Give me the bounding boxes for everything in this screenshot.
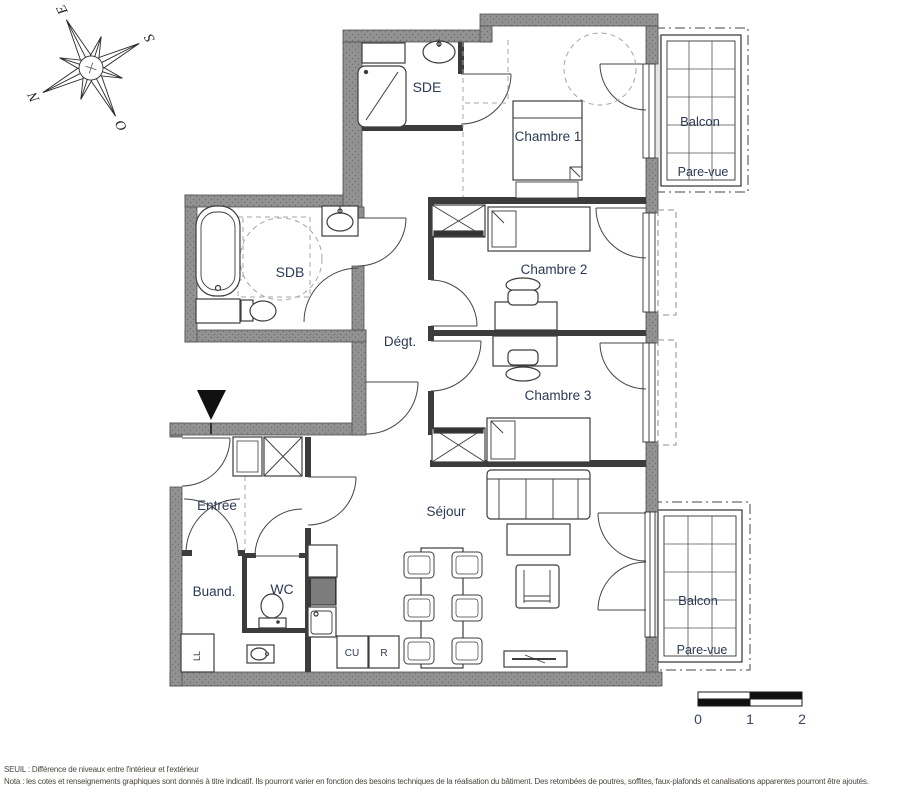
bed-bench bbox=[516, 182, 578, 198]
room-label-sdb: SDB bbox=[276, 264, 305, 280]
footer-notes: SEUIL : Différence de niveaux entre l'in… bbox=[4, 764, 920, 788]
compass-south-label: S bbox=[142, 31, 159, 44]
label-pare-vue-bottom: Pare-vue bbox=[677, 643, 728, 657]
label-cu: CU bbox=[345, 648, 359, 659]
sofa bbox=[487, 470, 590, 519]
label-pare-vue-top: Pare-vue bbox=[678, 165, 729, 179]
floor-plan-page: N S E O bbox=[0, 0, 923, 800]
desk-chair bbox=[506, 278, 540, 305]
scale-tick-1: 1 bbox=[746, 711, 754, 727]
room-label-sejour: Séjour bbox=[426, 504, 466, 519]
shutter-projections bbox=[658, 210, 676, 445]
label-balcon-bottom: Balcon bbox=[678, 593, 718, 608]
bathtub bbox=[196, 206, 240, 296]
coffee-table bbox=[507, 524, 570, 555]
small-washbasin bbox=[247, 645, 274, 663]
scale-tick-0: 0 bbox=[694, 711, 702, 727]
single-bed bbox=[487, 418, 590, 462]
room-label-chambre1: Chambre 1 bbox=[515, 129, 582, 144]
closet-x bbox=[264, 437, 302, 476]
scale-tick-2: 2 bbox=[798, 711, 806, 727]
tall-unit bbox=[308, 545, 337, 577]
chambre1-furniture bbox=[513, 101, 582, 198]
entree-closets bbox=[233, 437, 302, 476]
shower bbox=[358, 66, 406, 127]
desk bbox=[495, 302, 557, 330]
label-washing-machine: LL bbox=[192, 651, 202, 661]
compass-rose: N S E O bbox=[0, 0, 189, 163]
wardrobe bbox=[432, 428, 485, 462]
room-label-chambre2: Chambre 2 bbox=[521, 262, 588, 277]
wardrobe bbox=[432, 205, 485, 237]
room-label-sde: SDE bbox=[413, 79, 442, 95]
cupboard bbox=[362, 43, 405, 63]
room-label-degt: Dégt. bbox=[384, 334, 416, 349]
appliance-hatched bbox=[310, 578, 336, 605]
single-bed bbox=[488, 207, 590, 251]
label-balcon-top: Balcon bbox=[680, 114, 720, 129]
tv-unit bbox=[504, 651, 567, 667]
compass-north-label: N bbox=[25, 89, 43, 106]
room-label-buand: Buand. bbox=[193, 584, 236, 599]
footer-seuil-note: SEUIL : Différence de niveaux entre l'in… bbox=[4, 764, 920, 776]
scale-bar bbox=[698, 692, 802, 706]
toilet bbox=[259, 594, 286, 628]
bath-cabinet bbox=[196, 299, 240, 323]
toilet bbox=[241, 300, 276, 321]
compass-east-label: E bbox=[54, 2, 72, 18]
room-label-wc: WC bbox=[270, 581, 293, 597]
washbasin bbox=[322, 206, 358, 236]
room-label-chambre3: Chambre 3 bbox=[525, 388, 592, 403]
room-label-entree: Entrée bbox=[197, 498, 237, 513]
floor-plan-drawing: N S E O bbox=[0, 0, 923, 800]
windows bbox=[643, 64, 655, 637]
armchair bbox=[516, 565, 559, 608]
sejour-furniture bbox=[404, 470, 590, 668]
compass-west-label: O bbox=[113, 117, 131, 133]
washbasin bbox=[423, 39, 455, 63]
footer-nota-note: Nota : les cotes et renseignements graph… bbox=[4, 776, 920, 788]
kitchen-sink bbox=[308, 607, 336, 637]
label-r: R bbox=[380, 648, 387, 659]
